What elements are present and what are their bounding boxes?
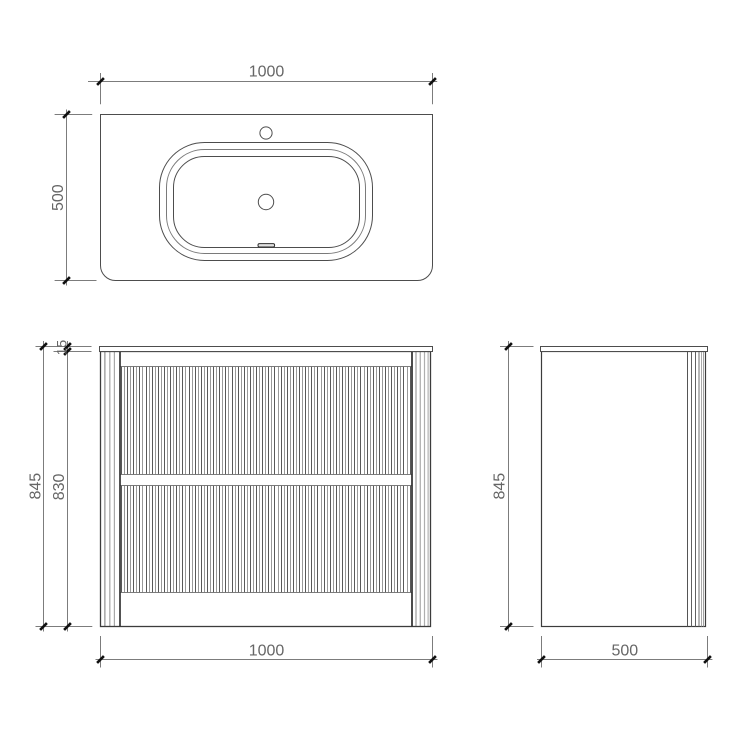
svg-text:845: 845	[27, 473, 44, 500]
svg-text:830: 830	[51, 473, 68, 500]
svg-text:500: 500	[50, 184, 67, 211]
svg-text:1000: 1000	[249, 643, 285, 660]
svg-text:845: 845	[492, 473, 509, 500]
svg-text:500: 500	[611, 643, 638, 660]
svg-text:1000: 1000	[249, 64, 285, 81]
svg-text:15: 15	[53, 340, 69, 356]
